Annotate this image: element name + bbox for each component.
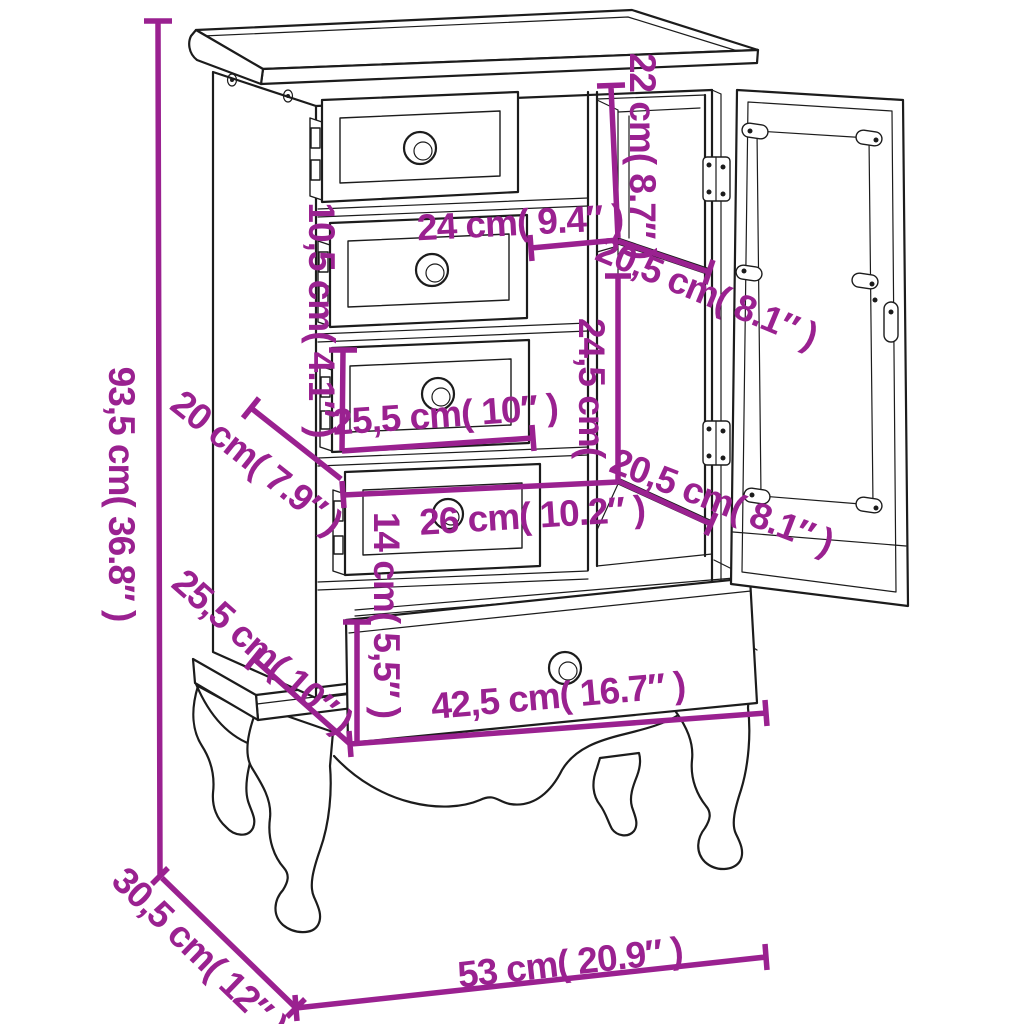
screw-hole-icon: [286, 94, 290, 98]
front-left-leg: [247, 706, 333, 932]
label-overall-height: 93,5 cm( 36.8″ ): [101, 367, 142, 622]
magnet-catch-plate: [884, 302, 898, 342]
runner-clip: [334, 536, 343, 554]
cabinet-dimension-diagram: 93,5 cm( 36.8″ ) 20 cm( 7.9″ ) 10,5 cm( …: [0, 0, 1024, 1024]
label-base-depth: 30,5 cm( 12″ ): [104, 859, 295, 1024]
dimension-diagram-page: 93,5 cm( 36.8″ ) 20 cm( 7.9″ ) 10,5 cm( …: [0, 0, 1024, 1024]
label-interior-height: 24,5 cm(: [571, 318, 612, 460]
drawer-1: [310, 92, 518, 202]
back-right-leg: [593, 753, 640, 835]
label-bottom-drawer-height: 14 cm( 5,5″ ): [366, 512, 407, 718]
label-upper-compartment-height: 22 cm( 8.7″ ): [622, 53, 663, 259]
drawer-panel: [340, 111, 500, 183]
dim-line-overall-height: [144, 21, 172, 884]
runner-clip: [311, 128, 320, 148]
runner-clip: [311, 160, 320, 180]
label-overall-width: 53 cm( 20.9″ ): [456, 929, 685, 995]
screw-hole-icon: [230, 78, 234, 82]
